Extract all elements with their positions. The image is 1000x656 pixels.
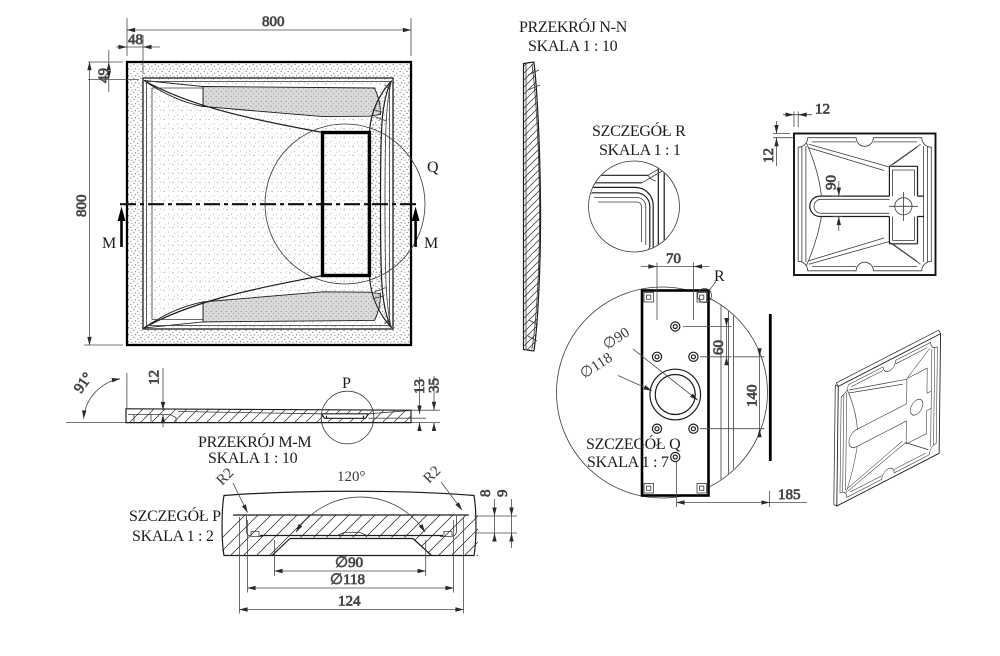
svg-text:140: 140 <box>745 385 761 408</box>
svg-text:SKALA 1 : 7: SKALA 1 : 7 <box>587 454 669 471</box>
svg-text:SZCZEGÓŁ P: SZCZEGÓŁ P <box>129 506 221 525</box>
svg-text:∅118: ∅118 <box>330 572 365 588</box>
svg-text:9: 9 <box>495 490 511 498</box>
svg-text:M: M <box>102 235 116 252</box>
svg-text:SKALA 1 : 10: SKALA 1 : 10 <box>208 450 298 467</box>
svg-text:P: P <box>342 375 351 392</box>
svg-text:35: 35 <box>427 378 443 393</box>
svg-text:124: 124 <box>338 594 361 610</box>
svg-text:PRZEKRÓJ M-M: PRZEKRÓJ M-M <box>198 432 311 451</box>
svg-text:49: 49 <box>96 68 112 83</box>
svg-text:SZCZEGÓŁ R: SZCZEGÓŁ R <box>592 121 686 140</box>
svg-text:120°: 120° <box>337 469 366 485</box>
svg-text:800: 800 <box>74 195 90 218</box>
svg-text:R: R <box>714 268 725 285</box>
svg-text:185: 185 <box>778 487 801 503</box>
svg-text:SZCZEGÓŁ Q: SZCZEGÓŁ Q <box>586 434 681 453</box>
svg-text:SKALA 1 : 10: SKALA 1 : 10 <box>528 38 618 55</box>
svg-text:PRZEKRÓJ N-N: PRZEKRÓJ N-N <box>519 17 628 36</box>
svg-text:8: 8 <box>478 490 494 498</box>
svg-text:∅90: ∅90 <box>335 555 363 571</box>
svg-text:90: 90 <box>824 175 840 190</box>
svg-text:12: 12 <box>761 148 777 163</box>
svg-text:M: M <box>424 235 438 252</box>
svg-text:Q: Q <box>427 159 439 176</box>
svg-text:800: 800 <box>262 14 285 30</box>
svg-text:SKALA 1 : 1: SKALA 1 : 1 <box>599 142 681 159</box>
svg-text:SKALA 1 : 2: SKALA 1 : 2 <box>132 528 214 545</box>
svg-text:70: 70 <box>666 251 681 267</box>
svg-text:48: 48 <box>128 32 143 48</box>
svg-text:12: 12 <box>147 370 163 385</box>
svg-text:60: 60 <box>711 340 727 355</box>
svg-text:12: 12 <box>815 102 830 118</box>
